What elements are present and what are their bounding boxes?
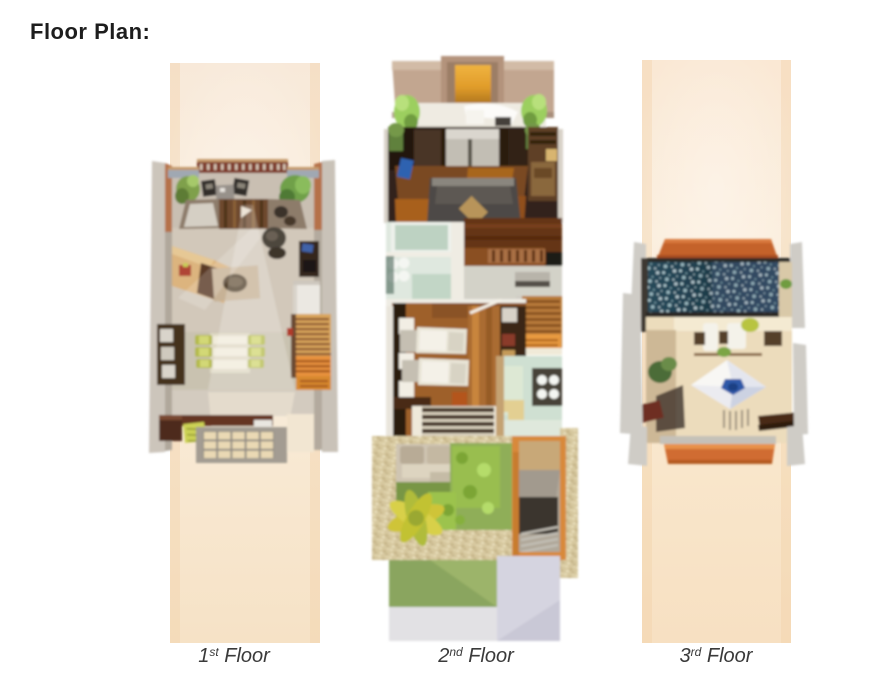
svg-text:2nd Floor: 2nd Floor	[437, 645, 515, 667]
svg-text:1st Floor: 1st Floor	[198, 645, 271, 667]
svg-text:Floor Plan:: Floor Plan:	[30, 19, 150, 44]
